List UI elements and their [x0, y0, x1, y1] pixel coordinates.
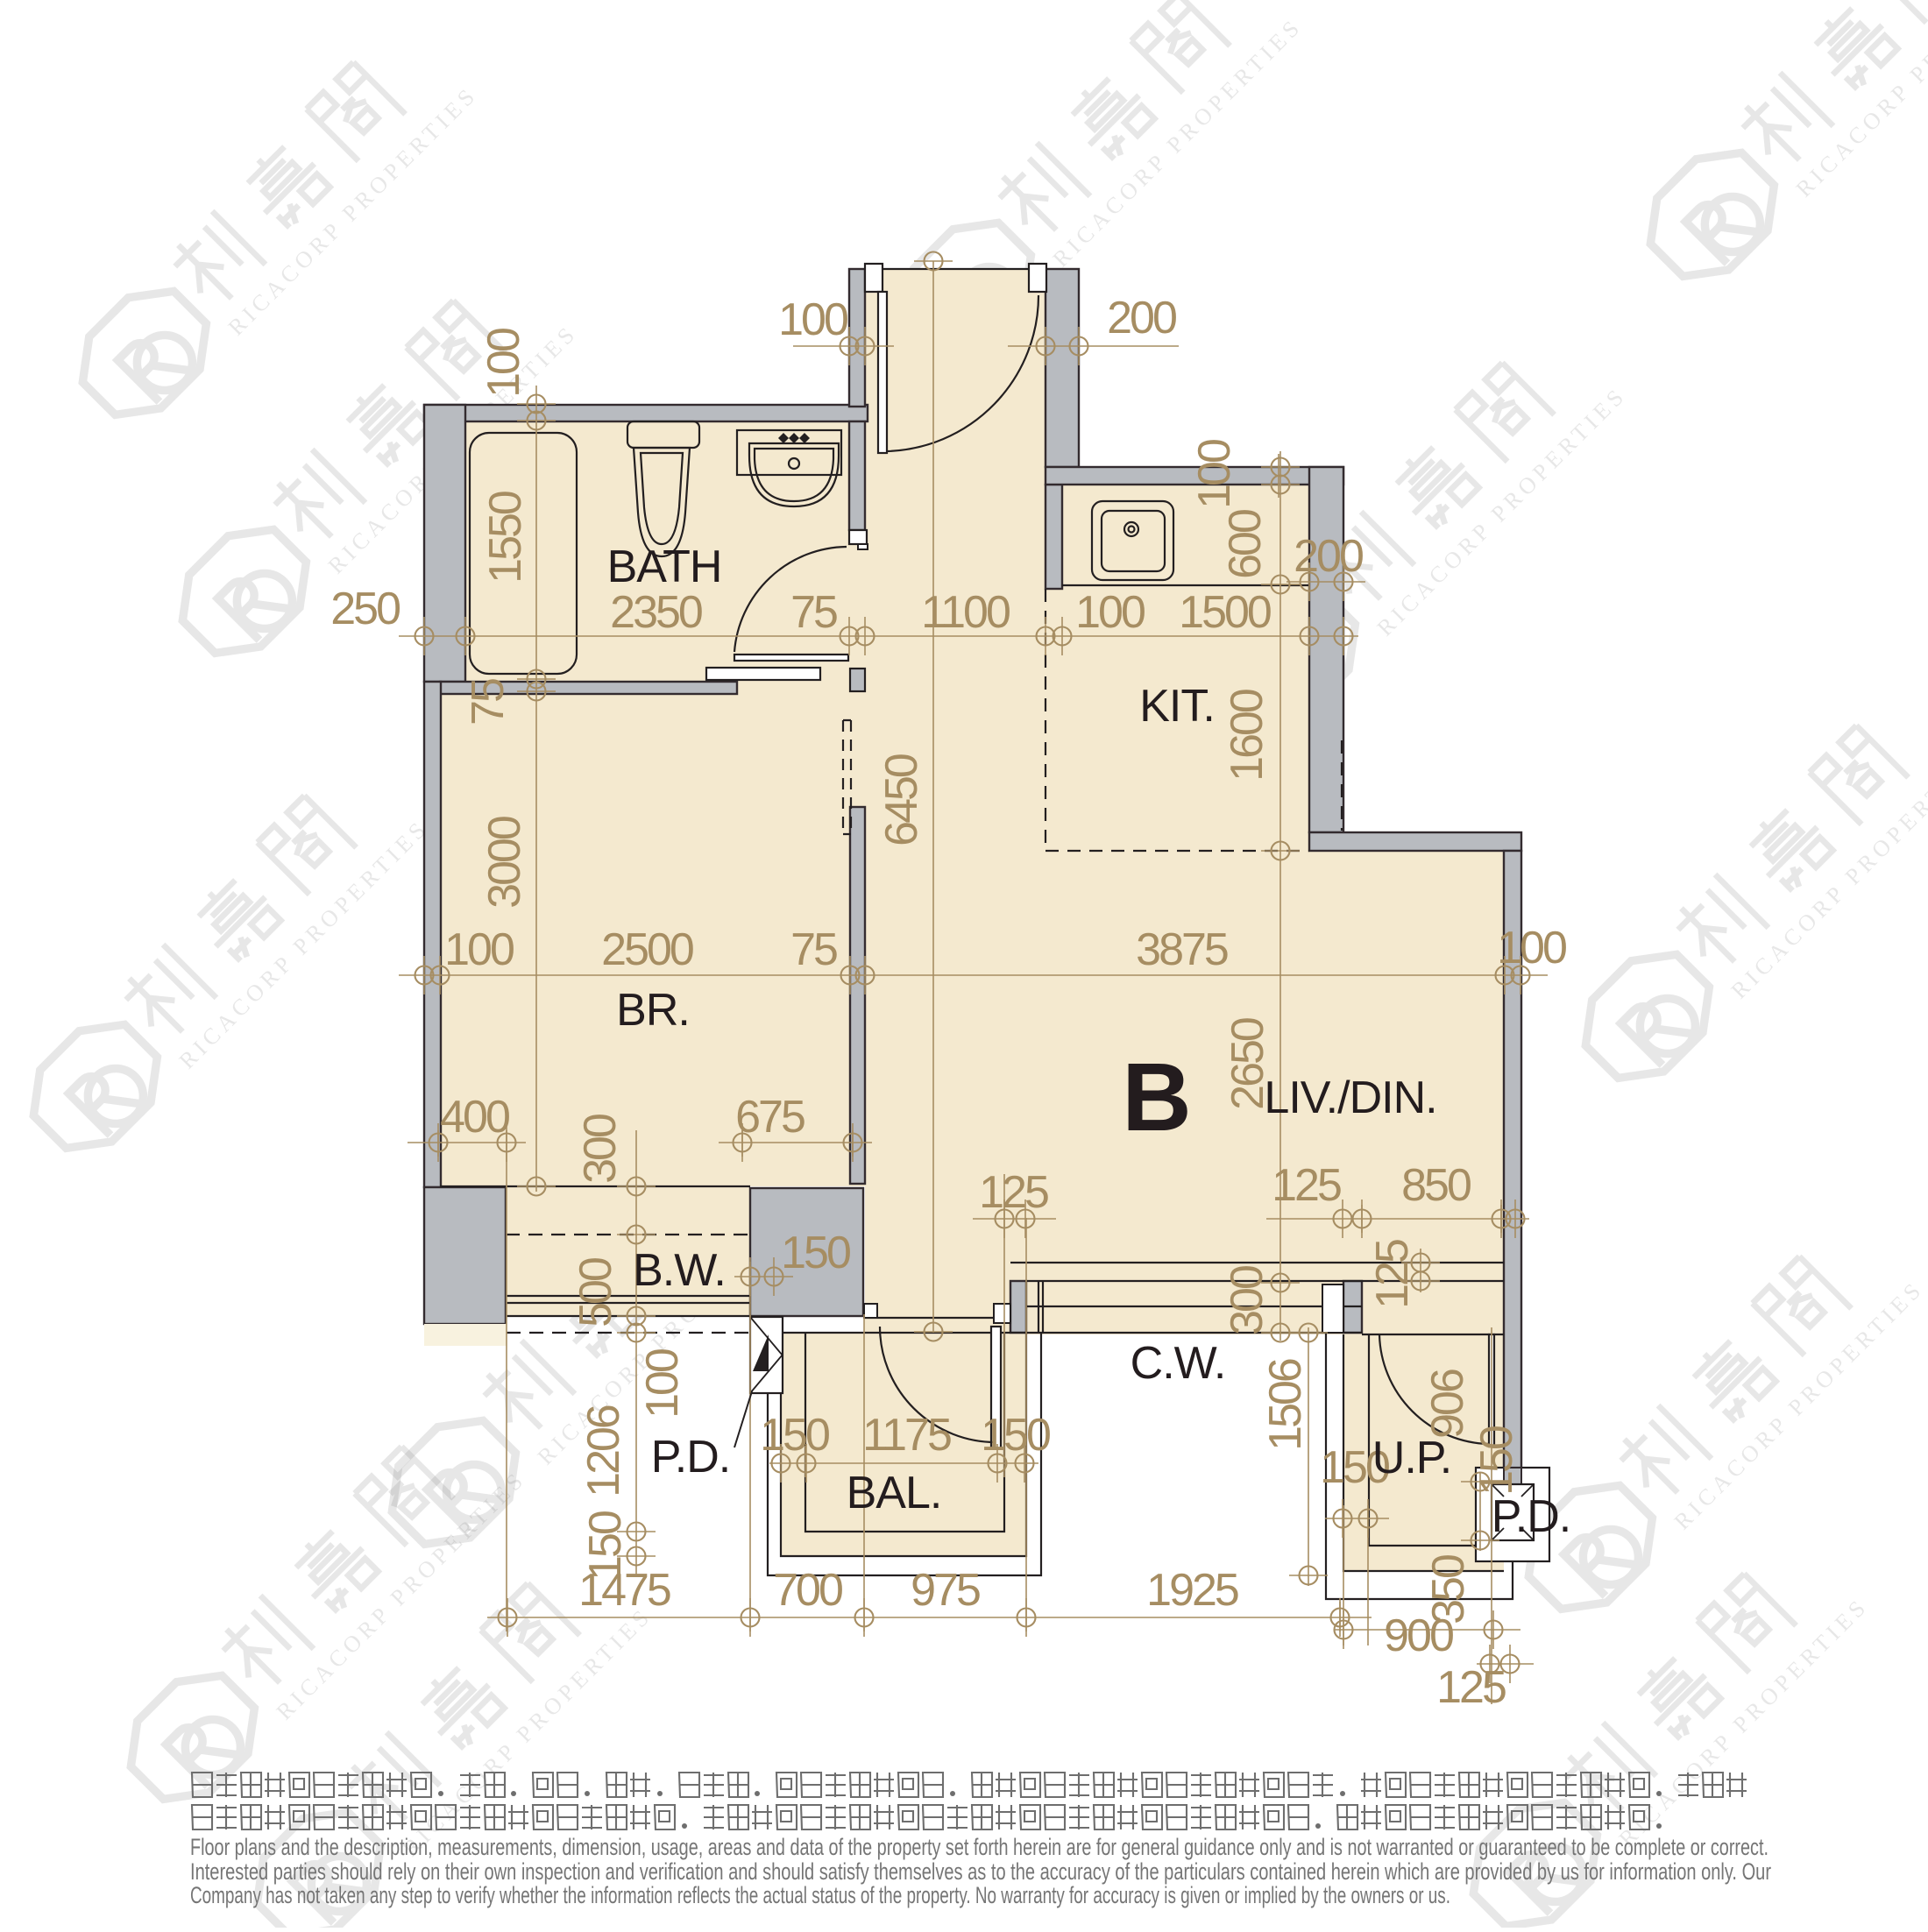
- svg-text:75: 75: [790, 587, 837, 638]
- svg-text:150: 150: [580, 1511, 631, 1581]
- svg-text:125: 125: [1367, 1240, 1418, 1309]
- svg-text:1550: 1550: [480, 492, 531, 584]
- svg-text:150: 150: [760, 1410, 829, 1461]
- svg-text:250: 250: [330, 584, 400, 634]
- svg-text:100: 100: [1497, 923, 1566, 973]
- svg-text:100: 100: [478, 329, 529, 398]
- svg-text:C.W.: C.W.: [1131, 1338, 1226, 1389]
- svg-text:3000: 3000: [479, 817, 530, 909]
- svg-text:100: 100: [1189, 440, 1240, 509]
- svg-text:150: 150: [981, 1410, 1050, 1461]
- svg-text:BR.: BR.: [616, 985, 690, 1036]
- svg-text:125: 125: [1272, 1160, 1341, 1211]
- svg-text:1175: 1175: [862, 1410, 951, 1461]
- svg-text:1506: 1506: [1260, 1359, 1311, 1451]
- svg-text:200: 200: [1294, 531, 1363, 582]
- svg-text:975: 975: [911, 1565, 980, 1616]
- svg-text:100: 100: [444, 924, 514, 975]
- svg-text:P.D.: P.D.: [651, 1432, 730, 1483]
- svg-text:2350: 2350: [610, 587, 702, 638]
- svg-text:1206: 1206: [578, 1405, 629, 1497]
- svg-text:1600: 1600: [1222, 690, 1272, 782]
- svg-text:400: 400: [440, 1092, 509, 1143]
- svg-text:U.P.: U.P.: [1372, 1433, 1451, 1483]
- svg-text:BAL.: BAL.: [847, 1468, 942, 1518]
- svg-text:75: 75: [463, 679, 514, 725]
- svg-text:150: 150: [1471, 1426, 1522, 1496]
- svg-text:Floor plans and the descriptio: Floor plans and the description, measure…: [190, 1834, 1769, 1860]
- svg-text:B.W.: B.W.: [633, 1245, 726, 1296]
- svg-text:350: 350: [1423, 1555, 1474, 1624]
- svg-text:906: 906: [1422, 1369, 1473, 1439]
- svg-text:100: 100: [637, 1349, 688, 1419]
- svg-text:300: 300: [575, 1115, 626, 1184]
- svg-text:675: 675: [735, 1092, 805, 1143]
- svg-text:KIT.: KIT.: [1139, 681, 1215, 732]
- svg-text:BATH: BATH: [607, 541, 722, 592]
- svg-text:125: 125: [979, 1167, 1048, 1218]
- svg-text:850: 850: [1401, 1160, 1471, 1211]
- svg-text:125: 125: [1436, 1662, 1506, 1713]
- svg-text:2500: 2500: [601, 924, 693, 975]
- svg-text:1500: 1500: [1179, 587, 1271, 638]
- svg-text:Company has not taken any step: Company has not taken any step to verify…: [190, 1882, 1450, 1908]
- svg-text:200: 200: [1107, 293, 1176, 343]
- svg-text:700: 700: [773, 1565, 842, 1616]
- svg-text:B: B: [1122, 1044, 1191, 1151]
- svg-text:150: 150: [781, 1228, 850, 1278]
- svg-text:1925: 1925: [1146, 1565, 1238, 1616]
- svg-text:300: 300: [1222, 1266, 1272, 1335]
- svg-text:75: 75: [790, 924, 837, 975]
- svg-text:1100: 1100: [921, 587, 1010, 638]
- svg-text:500: 500: [571, 1258, 621, 1327]
- svg-text:600: 600: [1220, 510, 1271, 579]
- svg-text:6450: 6450: [876, 754, 927, 846]
- svg-text:Interested parties should rely: Interested parties should rely on their …: [190, 1858, 1771, 1885]
- svg-text:P.D.: P.D.: [1492, 1491, 1570, 1542]
- svg-text:100: 100: [1075, 587, 1145, 638]
- svg-text:100: 100: [778, 294, 847, 345]
- svg-text:LIV./DIN.: LIV./DIN.: [1264, 1072, 1436, 1123]
- svg-text:3875: 3875: [1136, 924, 1228, 975]
